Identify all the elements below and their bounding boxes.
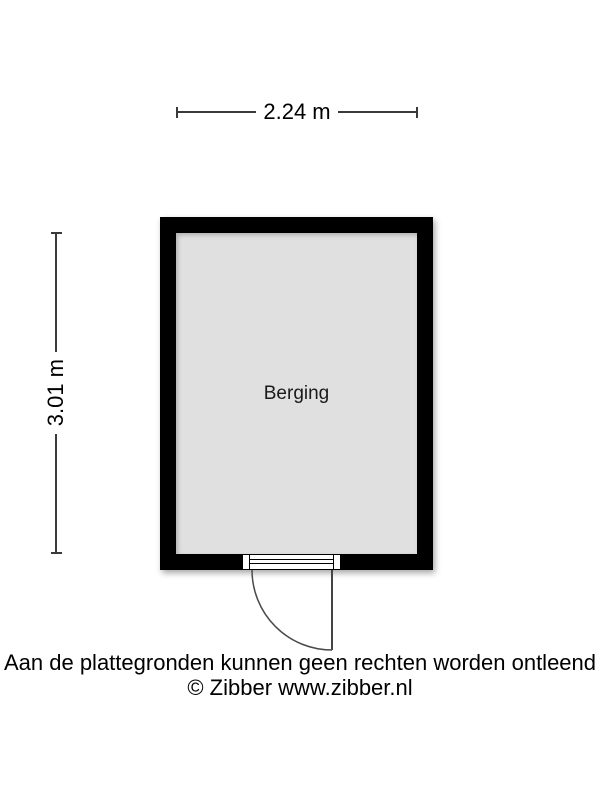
dimension-line [178,111,256,113]
dimension-tick [51,552,62,554]
height-dimension-label: 3.01 m [45,352,67,433]
height-dimension: 3.01 m [44,232,68,554]
width-dimension: 2.24 m [176,100,418,124]
dimension-line [55,434,57,552]
room-label: Berging [264,383,330,405]
dimension-line [338,111,416,113]
width-dimension-label: 2.24 m [256,101,337,123]
floorplan-page: 2.24 m 3.01 m Berging Aan de plattegrond… [0,0,600,800]
copyright-text: © Zibber www.zibber.nl [0,675,600,700]
dimension-tick [416,107,418,118]
door-swing-arc [245,566,340,656]
threshold-line [250,559,333,560]
room-walls: Berging [160,217,433,570]
room-berging: Berging [176,233,417,554]
disclaimer-text: Aan de plattegronden kunnen geen rechten… [0,650,600,675]
threshold-line [250,563,333,564]
dimension-line [55,234,57,352]
